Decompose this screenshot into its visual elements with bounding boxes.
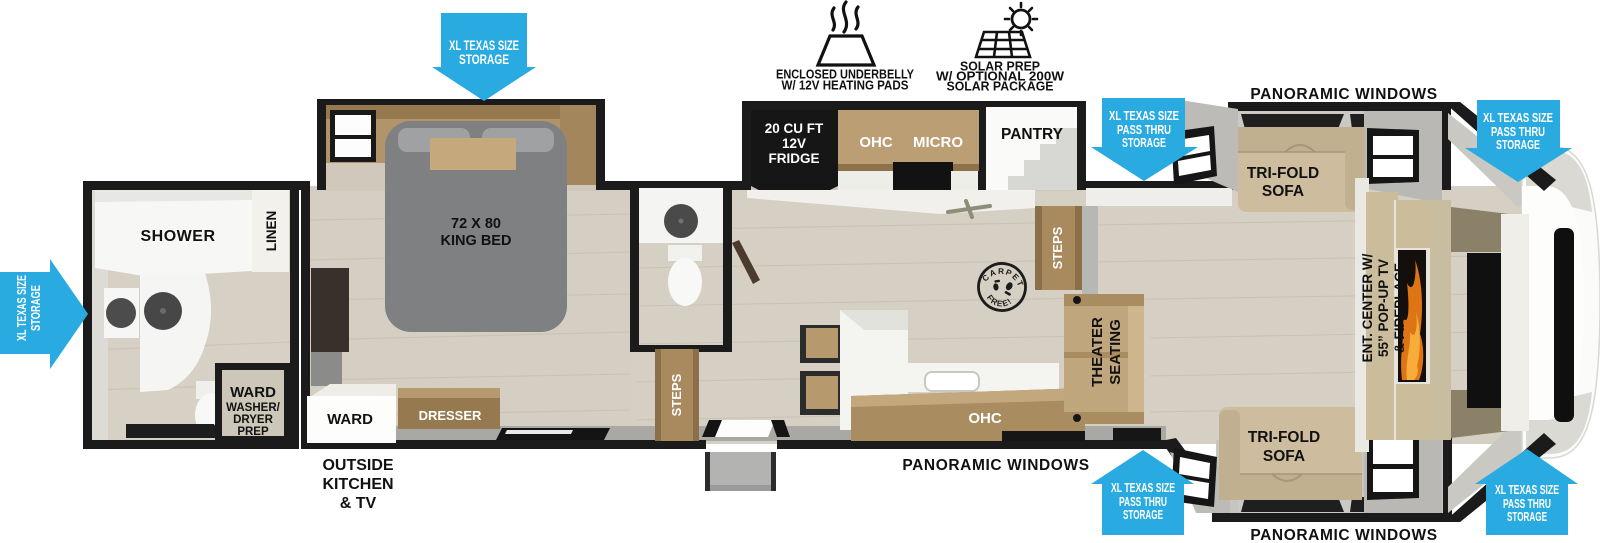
svg-text:W/ 12V HEATING PADS: W/ 12V HEATING PADS (782, 79, 909, 93)
svg-text:WASHER/: WASHER/ (226, 402, 280, 414)
svg-text:WARD: WARD (327, 411, 373, 428)
svg-text:KING BED: KING BED (441, 233, 512, 249)
svg-text:SOLAR PACKAGE: SOLAR PACKAGE (947, 80, 1054, 94)
svg-text:OHC: OHC (968, 410, 1002, 427)
svg-text:MICRO: MICRO (913, 134, 963, 151)
svg-text:XL TEXAS SIZE: XL TEXAS SIZE (449, 38, 519, 53)
svg-text:XL TEXAS SIZE: XL TEXAS SIZE (1111, 481, 1175, 495)
svg-text:PASS THRU: PASS THRU (1503, 497, 1551, 511)
svg-text:55” POP-UP TV: 55” POP-UP TV (1376, 259, 1391, 357)
svg-text:SHOWER: SHOWER (141, 228, 216, 245)
svg-text:PASS THRU: PASS THRU (1119, 495, 1167, 509)
svg-text:STORAGE: STORAGE (1122, 136, 1166, 150)
svg-text:STORAGE: STORAGE (459, 52, 509, 67)
svg-text:PANORAMIC WINDOWS: PANORAMIC WINDOWS (1250, 527, 1437, 543)
svg-text:STORAGE: STORAGE (1123, 508, 1163, 522)
svg-text:XL TEXAS SIZE: XL TEXAS SIZE (1109, 109, 1179, 123)
svg-text:KITCHEN: KITCHEN (322, 476, 393, 493)
svg-text:DRYER: DRYER (233, 414, 274, 426)
svg-text:WARD: WARD (230, 384, 276, 401)
svg-text:PREP: PREP (237, 426, 269, 438)
svg-text:OUTSIDE: OUTSIDE (322, 457, 393, 474)
svg-text:12V: 12V (782, 136, 806, 151)
svg-text:ENT. CENTER W/: ENT. CENTER W/ (1360, 253, 1375, 362)
svg-text:STORAGE: STORAGE (29, 285, 43, 331)
svg-text:PANORAMIC WINDOWS: PANORAMIC WINDOWS (902, 457, 1089, 474)
svg-text:PANORAMIC WINDOWS: PANORAMIC WINDOWS (1250, 86, 1437, 103)
svg-text:TRI-FOLD: TRI-FOLD (1248, 429, 1320, 446)
svg-text:PANTRY: PANTRY (1001, 126, 1064, 143)
svg-text:PASS THRU: PASS THRU (1117, 123, 1171, 137)
svg-text:LINEN: LINEN (264, 211, 279, 252)
svg-text:& TV: & TV (340, 495, 377, 512)
svg-text:XL TEXAS SIZE: XL TEXAS SIZE (15, 275, 29, 341)
svg-text:& FIREPLACE: & FIREPLACE (1392, 263, 1407, 353)
svg-text:FRIDGE: FRIDGE (768, 151, 819, 166)
svg-text:THEATER: THEATER (1089, 317, 1106, 387)
svg-text:XL TEXAS SIZE: XL TEXAS SIZE (1483, 111, 1553, 125)
svg-text:SEATING: SEATING (1107, 319, 1124, 385)
svg-text:SOFA: SOFA (1263, 448, 1305, 465)
svg-text:72 X 80: 72 X 80 (451, 216, 501, 232)
svg-text:STEPS: STEPS (1050, 226, 1065, 269)
svg-text:TRI-FOLD: TRI-FOLD (1247, 165, 1319, 182)
svg-text:20 CU FT: 20 CU FT (765, 121, 824, 136)
svg-text:XL TEXAS SIZE: XL TEXAS SIZE (1495, 483, 1559, 497)
svg-text:DRESSER: DRESSER (419, 408, 482, 423)
svg-text:STORAGE: STORAGE (1496, 138, 1540, 152)
svg-text:OHC: OHC (859, 134, 893, 151)
svg-text:STORAGE: STORAGE (1507, 510, 1547, 524)
svg-text:STEPS: STEPS (669, 373, 684, 416)
svg-text:PASS THRU: PASS THRU (1491, 125, 1545, 139)
svg-text:SOFA: SOFA (1262, 183, 1304, 200)
